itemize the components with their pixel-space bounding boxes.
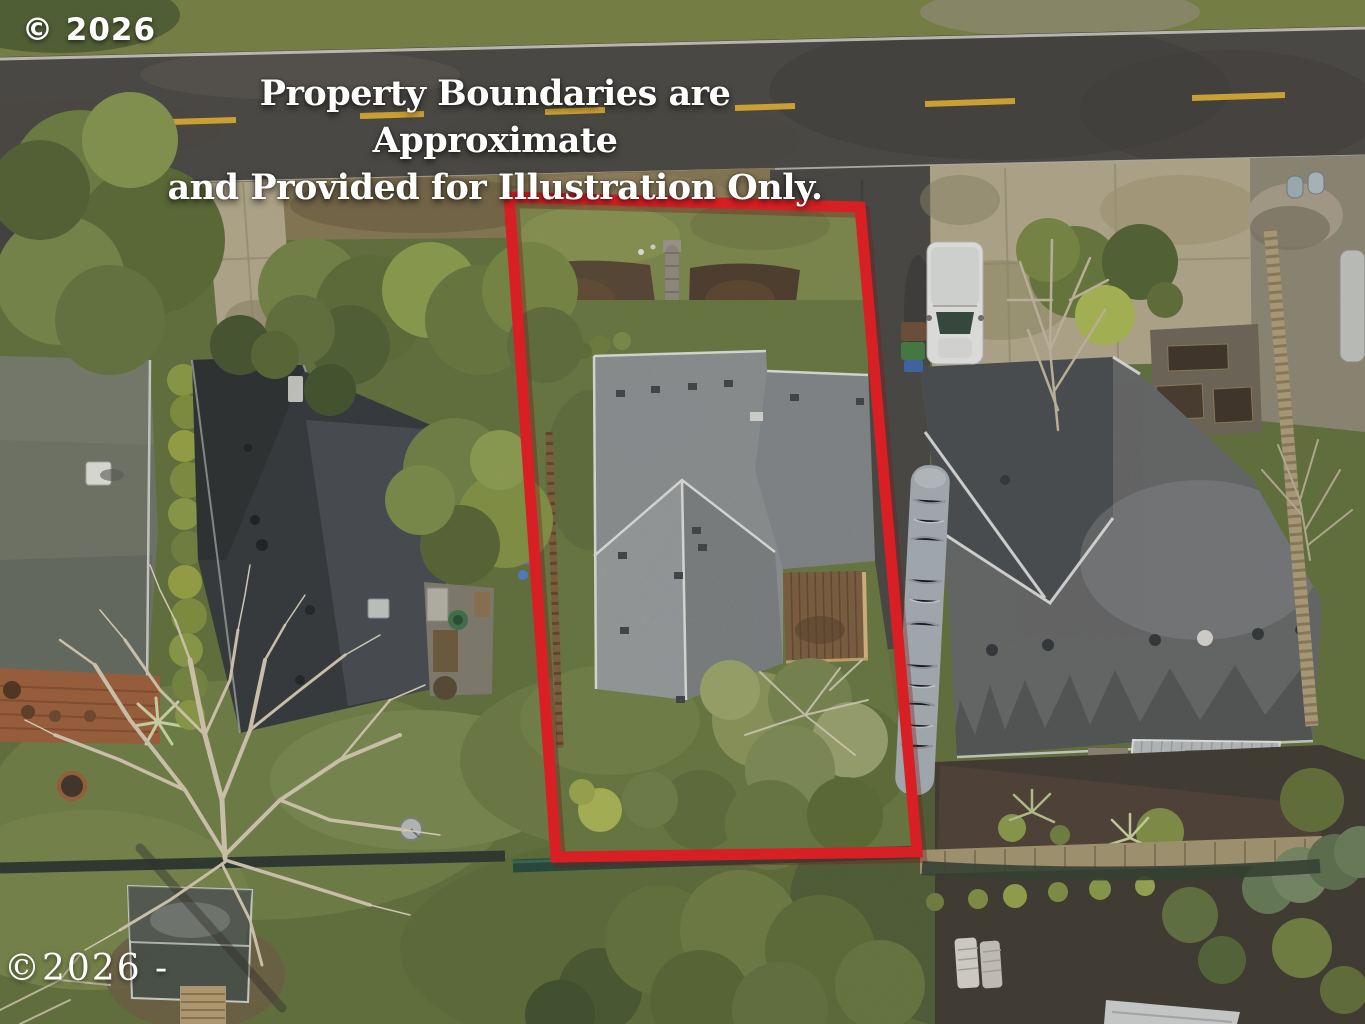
photo-grain-light [0, 0, 1365, 1024]
aerial-photo-stage: Property Boundaries are Approximate and … [0, 0, 1365, 1024]
aerial-photo [0, 0, 1365, 1024]
